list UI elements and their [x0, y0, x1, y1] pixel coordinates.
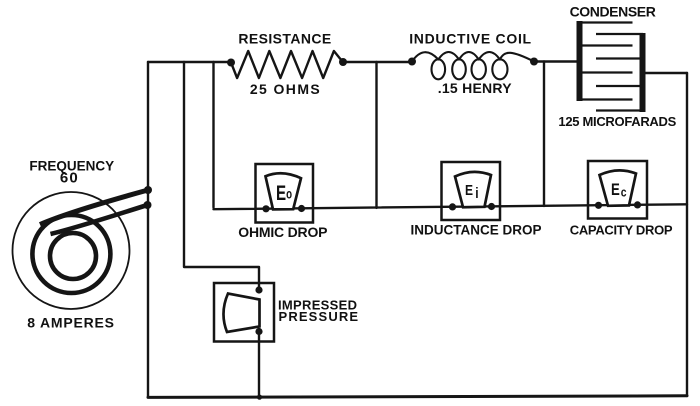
- svg-text:Ei: Ei: [465, 182, 479, 201]
- svg-text:60: 60: [60, 170, 79, 187]
- svg-text:INDUCTANCE DROP: INDUCTANCE DROP: [411, 223, 542, 238]
- svg-text:PRESSURE: PRESSURE: [279, 309, 360, 324]
- svg-text:8 AMPERES: 8 AMPERES: [27, 315, 115, 331]
- svg-text:RESISTANCE: RESISTANCE: [238, 31, 331, 47]
- svg-text:OHMIC DROP: OHMIC DROP: [238, 224, 327, 240]
- svg-text:125 MICROFARADS: 125 MICROFARADS: [558, 114, 676, 129]
- svg-text:CAPACITY DROP: CAPACITY DROP: [570, 223, 673, 238]
- svg-text:CONDENSER: CONDENSER: [570, 4, 656, 20]
- svg-text:.15 HENRY: .15 HENRY: [438, 80, 513, 96]
- svg-text:25 OHMS: 25 OHMS: [250, 81, 321, 97]
- svg-text:INDUCTIVE COIL: INDUCTIVE COIL: [409, 31, 532, 47]
